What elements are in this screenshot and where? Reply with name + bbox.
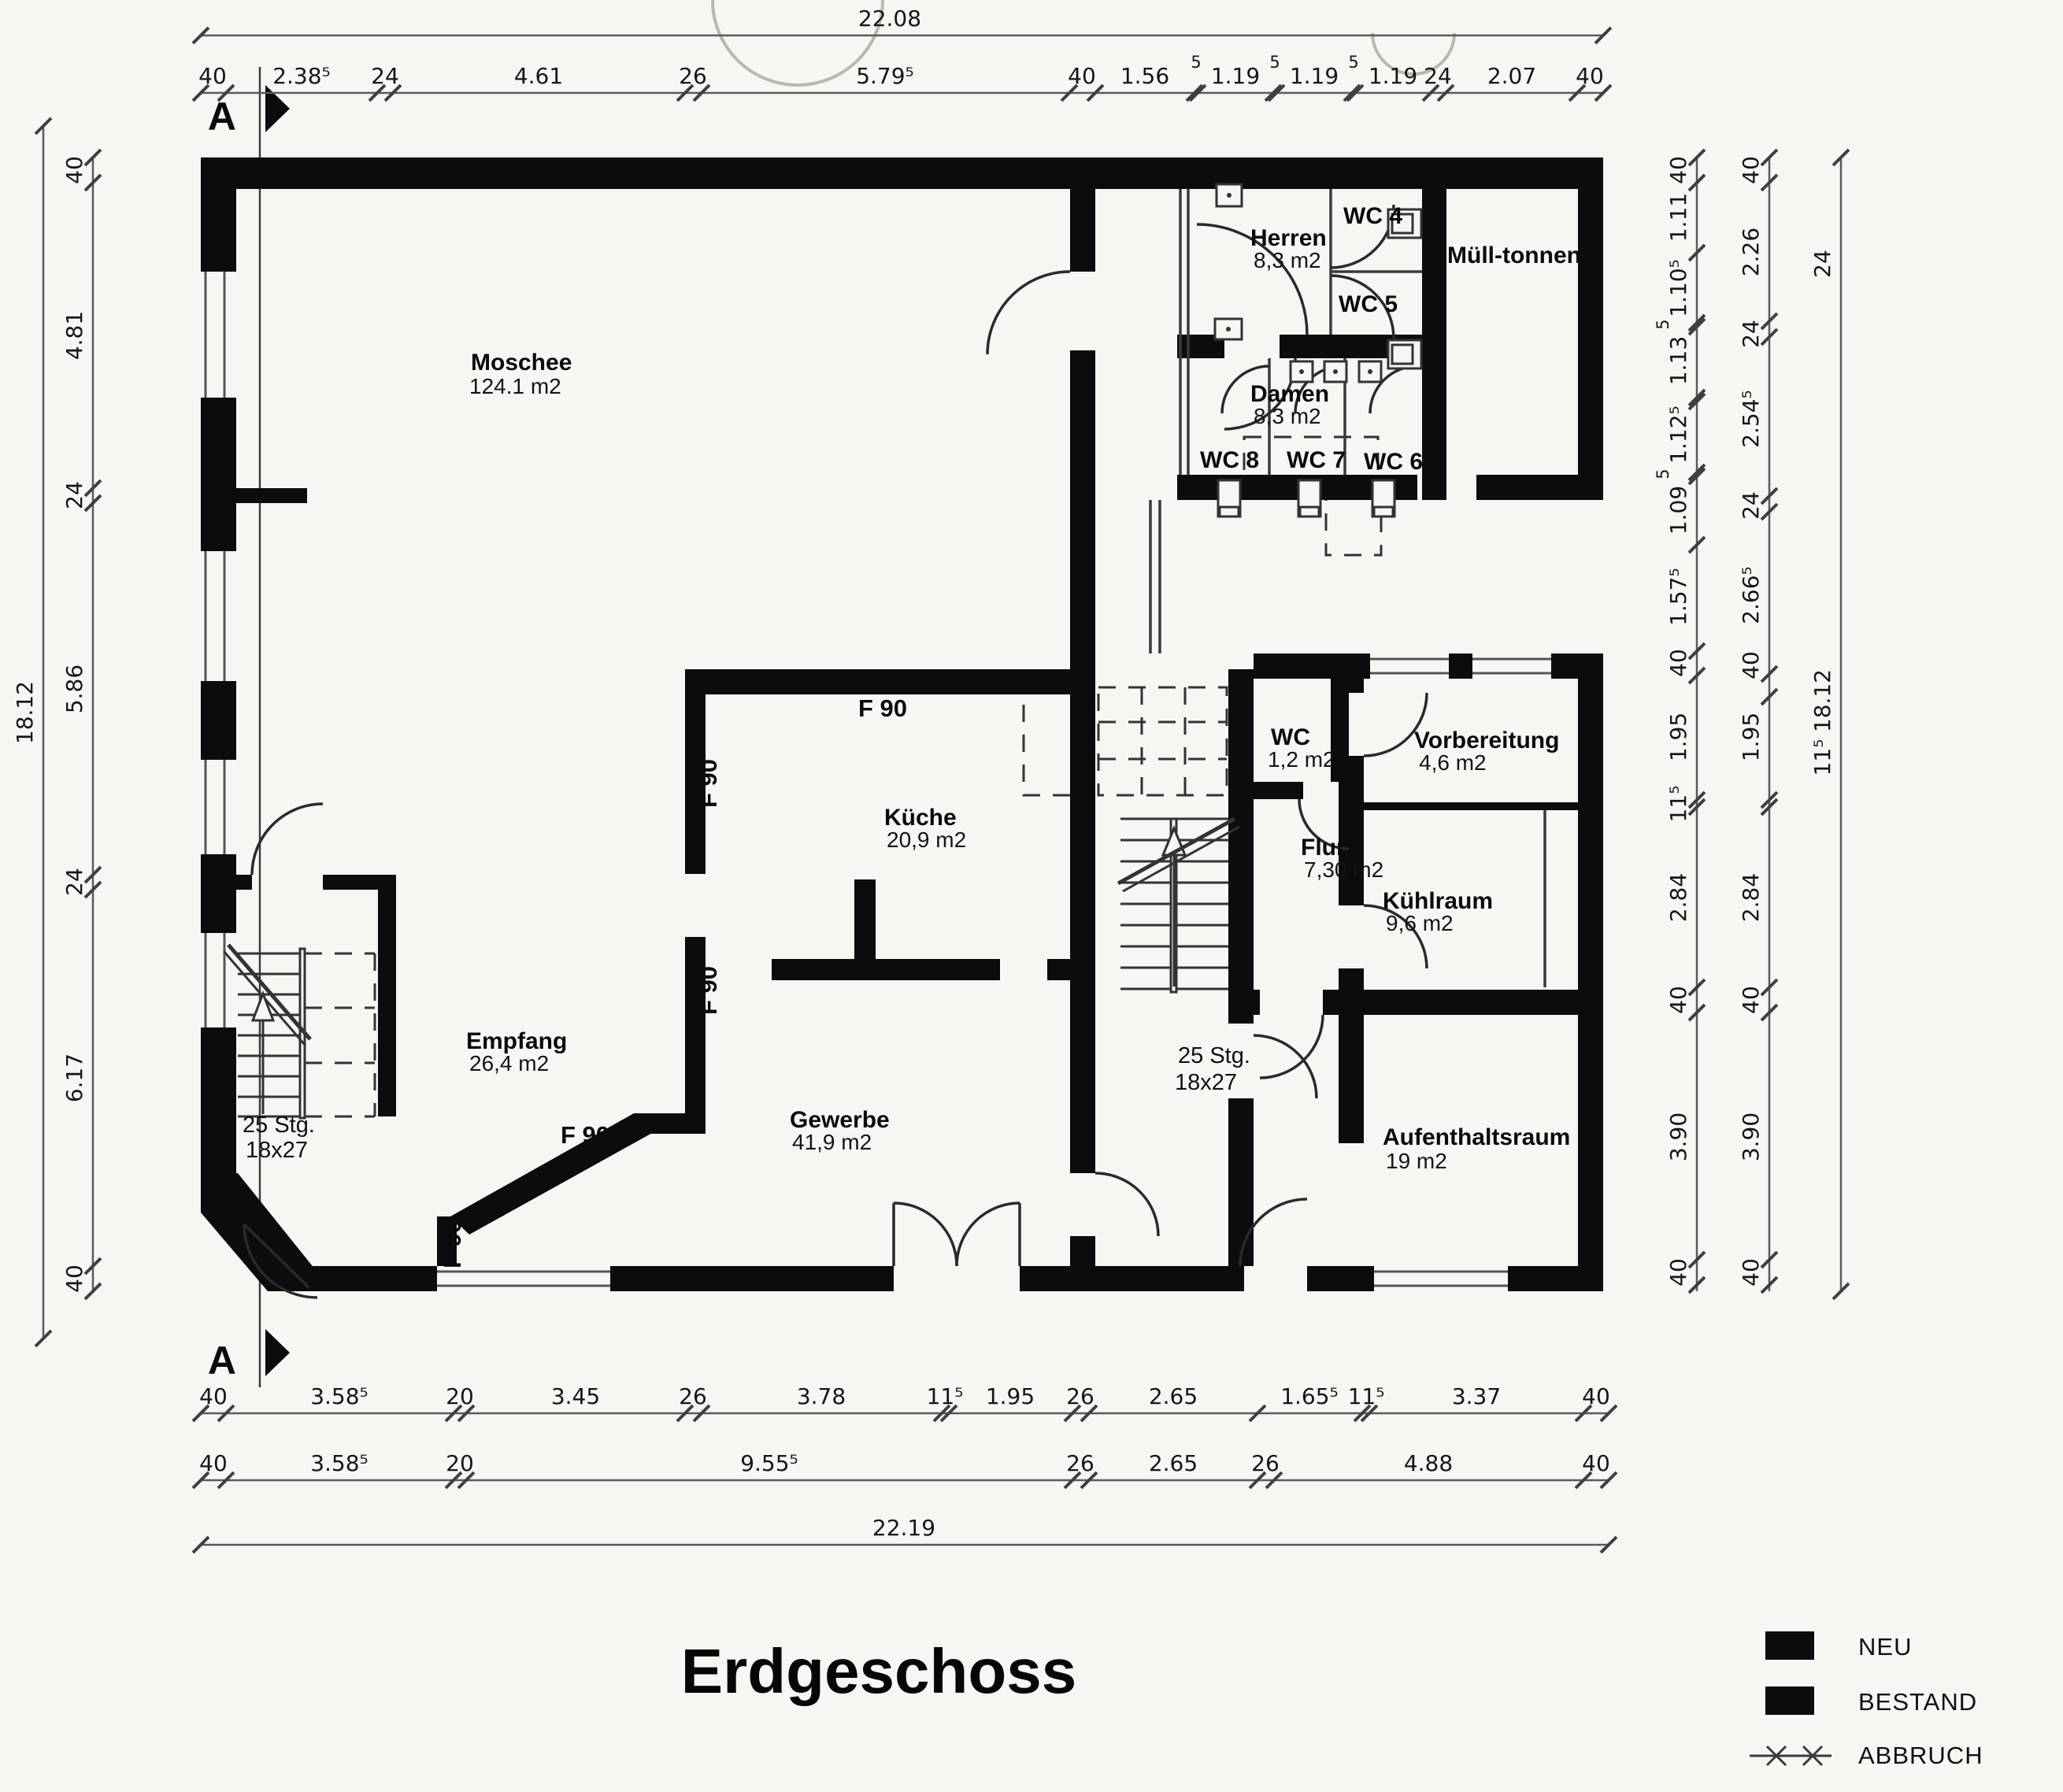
wall-segment: [201, 875, 252, 890]
legend-label-neu: NEU: [1858, 1633, 1912, 1661]
dimension-label: 3.90: [1665, 1113, 1691, 1161]
dimension-label: 3.58⁵: [310, 1450, 369, 1476]
dimension-label: 40: [198, 63, 227, 89]
room-label-wc8: WC 8: [1200, 447, 1259, 473]
dimension-label: 40: [1665, 1258, 1691, 1287]
dimension-label: 5.79⁵: [856, 63, 914, 89]
dimension-label: 6.17: [61, 1053, 87, 1102]
room-area-damen: 8,3 m2: [1254, 404, 1321, 428]
room-area-flur: 7,30 m2: [1304, 857, 1383, 882]
dimension-label: 5: [1654, 468, 1672, 479]
dimension-label: 5: [1348, 53, 1358, 72]
room-area-kueche: 20,9 m2: [887, 828, 966, 852]
stair-opening-dashed: [1098, 687, 1227, 795]
f90-label: F 90: [694, 966, 722, 1015]
dimension-label: 5: [1269, 53, 1280, 72]
dimension-label: 3.90: [1738, 1113, 1764, 1161]
dimension-label: 2.54⁵: [1738, 390, 1764, 448]
dimension-label: 26: [679, 1383, 707, 1409]
dimension-label: 5: [1191, 53, 1201, 72]
stairs-central: [1118, 819, 1239, 992]
dimension-label: 5.86: [61, 665, 87, 713]
wall-segment: [1070, 189, 1095, 272]
dimension-label: 1.09: [1665, 486, 1691, 535]
room-area-wc: 1,2 m2: [1268, 747, 1335, 772]
dimension-label: 1.11: [1665, 193, 1691, 242]
wall-segment: [1307, 1266, 1374, 1291]
dimension-label: 40: [1665, 986, 1691, 1014]
dimension-label: 18.12: [12, 681, 38, 744]
legend-swatch-bestand: [1765, 1686, 1814, 1715]
room-area-empfang: 26,4 m2: [469, 1051, 549, 1076]
dimension-label: 2.65: [1149, 1383, 1198, 1409]
dimension-label: 40: [1738, 986, 1764, 1014]
stairs-left: [224, 945, 375, 1118]
dimension-label: 1.10⁵: [1665, 259, 1691, 317]
dimension-label: 22.08: [858, 6, 921, 31]
dimension-label: 40: [1738, 651, 1764, 679]
dimension-label: 2.07: [1487, 63, 1536, 89]
dimension-label: 20: [446, 1450, 474, 1476]
wall-segment: [201, 157, 236, 272]
dimension-label: 24: [1738, 491, 1764, 520]
dimension-label: 24: [1424, 63, 1452, 89]
section-label-top: A: [208, 94, 236, 139]
dimension-label: 1.19: [1290, 63, 1339, 89]
dimension-label: 1.56: [1120, 63, 1169, 89]
f90-label: F 90: [439, 1220, 466, 1268]
legend-swatch-neu: [1765, 1631, 1814, 1660]
dimension-label: 1.19: [1369, 63, 1417, 89]
dimension-label: 1.95: [986, 1383, 1035, 1409]
wall-segment-thin: [1364, 802, 1578, 810]
dimension-label: 40: [61, 156, 87, 184]
wall-segment: [1422, 189, 1446, 500]
dimension-label: 4.81: [61, 311, 87, 360]
dimension-label: 24: [61, 481, 87, 509]
dimension-label: 3.78: [797, 1383, 846, 1409]
wall-segment: [201, 681, 236, 760]
page-title: Erdgeschoss: [681, 1636, 1076, 1706]
dimension-label: 2.84: [1665, 873, 1691, 922]
wall-segment: [307, 1266, 437, 1291]
room-area-vorbereitung: 4,6 m2: [1419, 750, 1487, 775]
wall-segment: [772, 959, 1000, 980]
dimension-label: 26: [1251, 1450, 1280, 1476]
room-label-wc6: WC 6: [1364, 449, 1423, 475]
room-area-herren: 8,3 m2: [1254, 248, 1321, 272]
legend-label-abbruch: ABBRUCH: [1858, 1742, 1983, 1769]
dimension-label: 5: [1654, 319, 1672, 329]
dimension-label: 40: [1665, 156, 1691, 184]
dimension-label: 2.26: [1738, 228, 1764, 276]
section-label-bottom: A: [208, 1338, 236, 1383]
dimension-label: 24: [1809, 250, 1835, 278]
dimension-label: 40: [61, 1264, 87, 1293]
dimension-label: 2.65: [1149, 1450, 1198, 1476]
floorplan-drawing: A A: [0, 0, 2063, 1792]
dimension-label: 24: [371, 63, 399, 89]
wall-segment: [1070, 1236, 1095, 1291]
double-door-leaf: [894, 1203, 957, 1266]
dimension-label: 40: [1582, 1383, 1610, 1409]
wall-segment: [1578, 189, 1603, 500]
dimension-chains: 22.08402.38⁵244.61265.79⁵401.5651.1951.1…: [12, 6, 1849, 1553]
dimension-label: 1.12⁵: [1665, 405, 1691, 464]
stair-steps-label: 25 Stg.: [1178, 1043, 1250, 1068]
dimension-label: 26: [1066, 1450, 1094, 1476]
wall-segment: [1047, 959, 1070, 980]
wall-segment: [706, 669, 1070, 694]
wall-segment: [201, 157, 1603, 189]
room-label-moschee: Moschee: [471, 350, 572, 376]
dimension-label: 40: [1738, 1258, 1764, 1287]
dimension-label: 40: [1068, 63, 1096, 89]
dimension-label: 3.58⁵: [310, 1383, 369, 1409]
wall-segment: [1228, 990, 1260, 1015]
dimension-label: 1.65⁵: [1280, 1383, 1339, 1409]
wall-segment: [1070, 872, 1095, 1173]
wall-segment: [610, 1266, 894, 1291]
wall-segment: [1578, 653, 1603, 1291]
dimension-label: 40: [1576, 63, 1604, 89]
dimension-label: 11⁵: [927, 1383, 964, 1409]
wall-segment: [201, 398, 236, 551]
dimension-label: 1.19: [1211, 63, 1260, 89]
wall-segment: [1254, 782, 1303, 799]
dimension-label: 40: [199, 1450, 228, 1476]
door-swing: [1254, 1035, 1317, 1098]
double-door-leaf: [957, 1203, 1020, 1266]
door-swing: [987, 272, 1070, 354]
dimension-label: 11⁵: [1665, 786, 1691, 823]
room-label-wc4: WC 4: [1343, 203, 1402, 229]
stair-break-line: [228, 945, 310, 1039]
room-label-aufenthaltsraum: Aufenthaltsraum: [1383, 1124, 1570, 1150]
dimension-label: 4.61: [514, 63, 563, 89]
wall-segment: [1476, 475, 1603, 500]
wall-segment: [201, 1027, 236, 1173]
door-swing: [1095, 1173, 1158, 1236]
dimension-label: 3.37: [1452, 1383, 1501, 1409]
wall-segment: [1070, 350, 1095, 872]
wall-corner-diagonal: [201, 1173, 315, 1291]
room-label-wc7: WC 7: [1287, 447, 1346, 473]
wall-segment: [1323, 990, 1578, 1015]
legend-symbol-abbruch: [1750, 1746, 1832, 1765]
legend: NEU BESTAND ABBRUCH: [1750, 1631, 1983, 1769]
dimension-label: 18.12: [1809, 669, 1835, 732]
wall-diagonal-f90: [450, 1113, 654, 1235]
wall-segment: [1449, 653, 1472, 679]
dimension-label: 9.55⁵: [740, 1450, 798, 1476]
dimension-label: 40: [199, 1383, 228, 1409]
dimension-label: 26: [679, 63, 707, 89]
section-arrow-icon: [265, 1329, 290, 1376]
room-area-kuehlraum: 9,6 m2: [1386, 911, 1454, 935]
dimension-label: 2.66⁵: [1738, 566, 1764, 624]
wall-segment: [1228, 1098, 1254, 1266]
dimension-label: 2.38⁵: [272, 63, 331, 89]
room-area-gewerbe: 41,9 m2: [792, 1130, 872, 1154]
wall-segment: [236, 488, 307, 503]
dimension-label: 26: [1066, 1383, 1094, 1409]
wall-segment: [1228, 669, 1254, 782]
dimension-label: 11⁵: [1348, 1383, 1385, 1409]
dimension-label: 3.45: [551, 1383, 600, 1409]
room-label-wc5: WC 5: [1339, 291, 1398, 317]
dimension-label: 1.95: [1665, 713, 1691, 761]
dimension-label: 2.84: [1738, 873, 1764, 922]
dimension-label: 40: [1665, 649, 1691, 677]
dimension-label: 24: [61, 868, 87, 896]
wall-segment: [1339, 679, 1364, 693]
room-area-aufenthaltsraum: 19 m2: [1386, 1149, 1447, 1173]
f90-label: F 90: [858, 694, 907, 722]
f90-label: F 90: [561, 1121, 609, 1149]
wall-segment: [378, 875, 396, 1116]
legend-label-bestand: BESTAND: [1858, 1688, 1977, 1716]
fire-rating-labels: F 90 F 90 F 90 F 90 F 90: [439, 694, 907, 1268]
stair-size-label: 18x27: [246, 1138, 308, 1163]
dimension-label: 1.57⁵: [1665, 568, 1691, 626]
dimension-label: 40: [1582, 1450, 1610, 1476]
door-swing: [252, 804, 323, 875]
dimension-label: 24: [1738, 320, 1764, 348]
wall-segment: [1254, 653, 1370, 679]
floorplan-page: A A: [0, 0, 2063, 1792]
wall-segment: [1020, 1266, 1244, 1291]
dimension-label: 4.88: [1404, 1450, 1453, 1476]
stair-steps-label: 25 Stg.: [243, 1113, 315, 1138]
dimension-label: 1.13: [1665, 336, 1691, 385]
stair-arrow-icon: [253, 994, 273, 1020]
room-area-moschee: 124.1 m2: [469, 374, 561, 398]
wall-segment: [1339, 756, 1364, 905]
dimension-label: 1.95: [1738, 713, 1764, 761]
dimension-label: 11⁵: [1809, 739, 1835, 776]
wall-segment: [201, 854, 236, 933]
dimension-label: 20: [446, 1383, 474, 1409]
dimension-label: 40: [1738, 156, 1764, 184]
wall-segment: [1551, 653, 1603, 679]
room-label-muelltonnen: Müll-tonnen: [1447, 243, 1581, 268]
f90-label: F 90: [694, 759, 722, 808]
stair-size-label: 18x27: [1175, 1070, 1237, 1095]
dimension-label: 22.19: [872, 1515, 935, 1541]
